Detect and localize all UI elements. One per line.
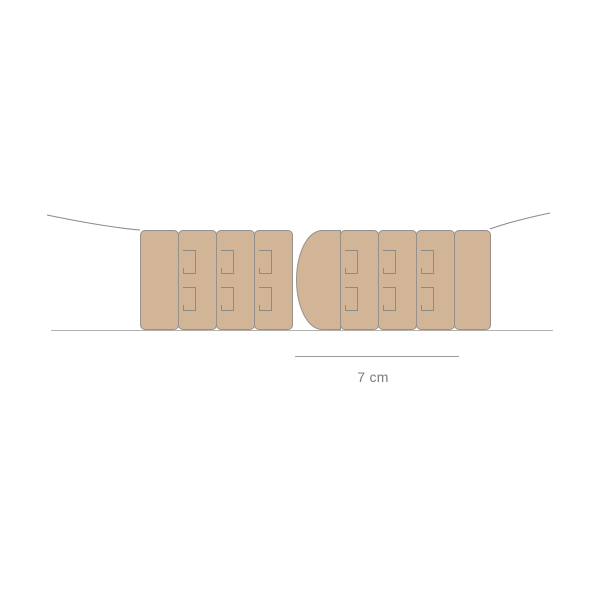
hook-icon: [421, 250, 434, 274]
band-hook-segment: [178, 230, 217, 330]
hook-icon: [345, 250, 358, 274]
band-plain-segment: [140, 230, 179, 330]
band-hook-segment: [216, 230, 255, 330]
hook-icon: [183, 287, 196, 311]
band-plain-segment: [454, 230, 491, 330]
hook-icon: [383, 250, 396, 274]
hook-icon: [259, 287, 272, 311]
hook-icon: [421, 287, 434, 311]
band-hook-segment: [340, 230, 379, 330]
hook-icon: [183, 250, 196, 274]
extender-band: [0, 0, 601, 601]
hook-icon: [221, 287, 234, 311]
hook-icon: [345, 287, 358, 311]
hook-icon: [383, 287, 396, 311]
hook-icon: [259, 250, 272, 274]
band-hook-segment: [378, 230, 417, 330]
hook-icon: [221, 250, 234, 274]
diagram-canvas: 7 cm: [0, 0, 601, 601]
measurement-label: 7 cm: [295, 369, 451, 385]
band-hook-segment: [416, 230, 455, 330]
band-rounded-end-segment: [296, 230, 341, 330]
band-hook-segment: [254, 230, 293, 330]
